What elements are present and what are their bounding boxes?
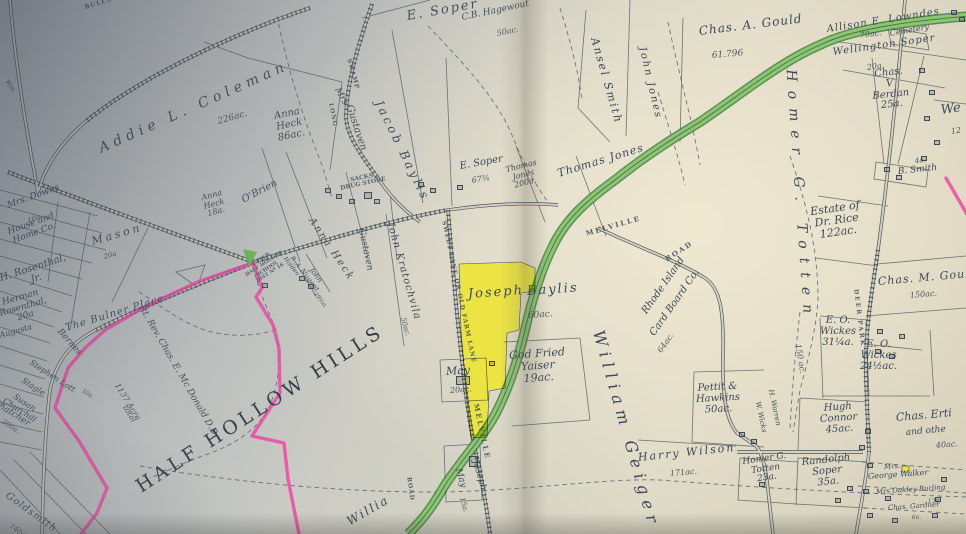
map-label-ansel-smith: Ansel Smith [588, 36, 624, 125]
map-label-eo-wickes-1: E. O. Wickes 31¼a. [820, 316, 856, 348]
map-label-thomas-jones-big: Thomas Jones [556, 142, 645, 180]
map-label-george-walker: George Walker [868, 469, 929, 482]
map-label-wicks: W. Wicks [753, 401, 767, 433]
atlas-map-page: Addie L. Coleman226ac.Anna Heck 86ac.Mrs… [0, 0, 966, 534]
map-label-melville-road-1: MELVILLE [585, 214, 642, 237]
map-label-hagewout-acres: 50ac. [496, 26, 519, 39]
map-label-mason-acres: 20a [103, 251, 118, 262]
map-label-wm-fragment: Wm. [3, 79, 16, 94]
map-label-oakley-burling: Mrs Oakley Burling [876, 484, 946, 496]
map-label-erti-others: and othe [906, 426, 947, 439]
map-label-gustaven-1: Gustaven [343, 104, 368, 153]
map-label-chas-a-gould: Chas. A. Gould [698, 12, 803, 38]
map-label-william-2: Willia [345, 494, 392, 529]
map-label-stagle: Stagle [20, 377, 46, 398]
map-label-b-smith: B. Smith [897, 164, 937, 178]
map-label-joseph-may-1: Joseph [469, 460, 487, 492]
map-label-lott-acres: 10a. [80, 389, 95, 402]
map-label-homer-totten-23: Homer G. Totten 23a. [742, 452, 790, 487]
map-label-berdan: Chas. V Berdan 25a. [870, 66, 911, 113]
map-label-goldsmith-acres: 140a. [8, 523, 28, 534]
map-label-e-soper-2: E. Soper [459, 155, 504, 173]
map-label-gustaven-2: Gustaven [355, 228, 373, 272]
map-label-gardner-acres: 6a. [912, 514, 922, 521]
map-label-house-home-co: House and Home Co. [7, 212, 60, 247]
map-label-mcdonald: Rt. Rev. Chas. E. Mc Donald D.D. [136, 304, 220, 439]
map-label-obrien: O'Brien [240, 178, 279, 206]
map-label-melville-road-3: MELVILLE [472, 403, 491, 460]
map-label-chas-gardner: Chas. Gardner [888, 501, 940, 512]
map-label-lowndes-acres: 70ac. [859, 29, 882, 41]
map-label-anna-heck-86: Anna Heck 86ac. [273, 107, 307, 144]
map-label-joseph-baylis-1: Joseph [468, 284, 525, 302]
map-label-chas-a-gould-acres: 61.796 [712, 49, 744, 61]
map-label-h-warren: H. Warren [766, 389, 781, 426]
map-label-b-smith-acres: 4a. [915, 157, 927, 166]
map-label-e-soper-2-acres: 67¾ [471, 174, 490, 186]
map-label-randolph-soper: Randolph Soper 35a. [801, 453, 853, 490]
map-label-bulls-road: BULLS [84, 0, 113, 11]
map-label-chas-m-gould: Chas. M. Gould [877, 267, 966, 288]
map-label-road-small: ROAD [405, 477, 415, 502]
map-label-wilson-acres: 171ac. [670, 468, 698, 479]
map-label-pettit-hawkins: Pettit & Hawkins 50ac. [695, 382, 741, 417]
map-label-mrs-downs: Mrs. Downs [6, 184, 61, 212]
map-label-kratochvila-acres: 50ac. [398, 317, 411, 338]
map-label-nugent-acres: 29¾a. [311, 291, 328, 310]
map-label-john-kratochvila: John Kratochvila [384, 222, 422, 321]
map-label-long-swamp-2: LONG [327, 103, 338, 128]
label-layer: Addie L. Coleman226ac.Anna Heck 86ac.Mrs… [0, 0, 966, 534]
map-label-god-fried-yaiser: God Fried Yaiser 19ac. [509, 346, 567, 385]
map-label-estate-dr-rice: Estate of Dr. Rice 122ac. [810, 199, 864, 241]
map-label-totten-150ac: 150 ac. [793, 344, 807, 375]
map-label-may-acres: 20ac. [450, 385, 473, 395]
map-label-chas-m-gould-acres: 150ac. [910, 290, 938, 301]
map-label-addie-coleman: Addie L. Coleman [97, 59, 291, 157]
map-label-we-acres: 12 [950, 127, 961, 137]
map-label-joseph-baylis-acres: 60ac. [528, 310, 553, 321]
map-label-william-geiger: William Geiger [590, 328, 663, 530]
map-label-erti-acres: 40ac. [936, 440, 959, 451]
map-label-joseph-may-2: May [452, 468, 467, 490]
map-label-chas-erti: Chas. Erti [895, 407, 952, 424]
map-label-may: May [446, 364, 471, 378]
map-label-joseph-may-acres: 15a. [457, 497, 468, 514]
map-label-long-swamp-1: SWAMP [345, 58, 360, 90]
map-label-jacob-baylis: Jacob Baylis [372, 99, 432, 204]
map-label-wellington-soper: Wellington Soper [832, 34, 936, 59]
map-label-john-nugent: John Nugent [298, 263, 326, 293]
map-label-anna-heck-18: Anna Heck 18a. [201, 189, 228, 219]
map-label-joseph-baylis-2: Baylis [527, 281, 579, 299]
map-label-hugh-connor: Hugh Connor 45ac. [819, 401, 859, 436]
map-label-addie-coleman-acres: 226ac. [217, 110, 249, 128]
map-label-we-partial: We [940, 101, 962, 118]
map-label-sacks-drug-store: SACKS DRUG STORE [339, 171, 387, 193]
map-label-school-dist-16: UPPER HALF HOLLOW SCHOOL DIST Nº 16 [242, 246, 290, 288]
map-label-john-jones: John Jones [636, 46, 663, 120]
map-label-mason: Mason [90, 222, 143, 248]
map-label-harry-wilson: Harry Wilson [637, 442, 736, 464]
map-label-thomas-jones-small: Thomas Jones 200a. [505, 159, 542, 192]
map-label-homer-g-totten: Homer G. Totten [782, 69, 815, 323]
